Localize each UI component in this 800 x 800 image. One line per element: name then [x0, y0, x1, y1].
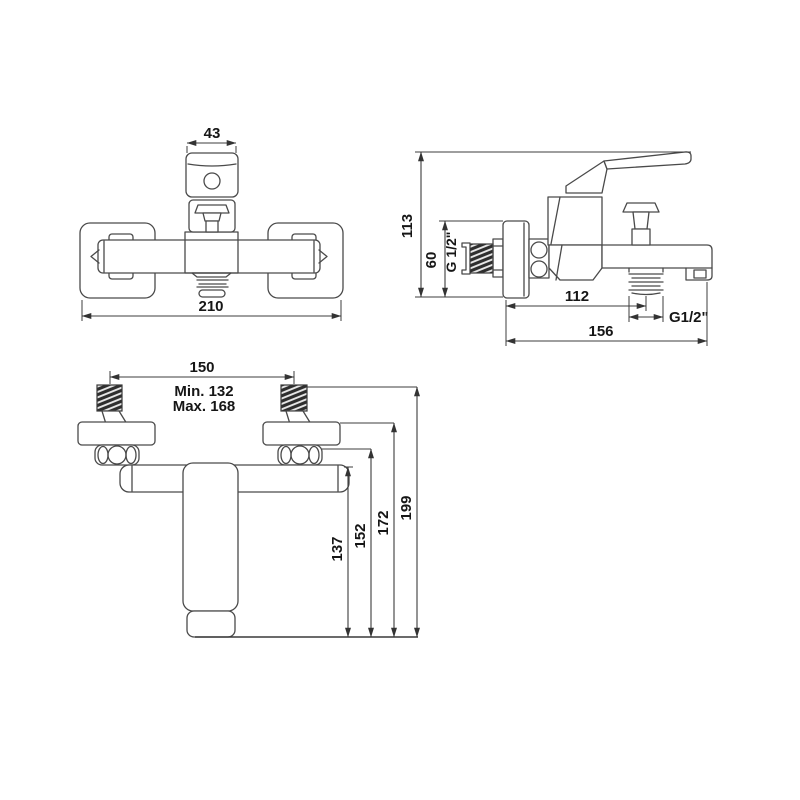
knob-base [632, 229, 650, 245]
front-dim-210-label: 210 [198, 298, 223, 315]
top-dim-150-label: 150 [189, 359, 214, 376]
front-dim-43-label: 43 [204, 125, 221, 142]
knob-cap [195, 205, 229, 213]
knob-cap [623, 203, 659, 212]
front-handle [186, 153, 238, 197]
side-shower-thread-label: G 1/2" [443, 232, 459, 273]
inlet-escutcheon [263, 422, 340, 445]
knob-stem [203, 213, 221, 221]
top-dim-172-label: 172 [375, 510, 392, 535]
knob-stem [633, 212, 649, 229]
top-dim-137-label: 137 [329, 536, 346, 561]
side-body [548, 197, 602, 280]
side-wall-plate [503, 221, 529, 298]
side-dim-112-label: 112 [565, 288, 589, 305]
side-outlet-thread-label: G1/2" [669, 309, 709, 326]
front-body-bar [98, 240, 320, 273]
inlet-escutcheon [78, 422, 155, 445]
inlet-nut [95, 445, 139, 465]
side-dim-113-label: 113 [399, 214, 416, 238]
top-spout-body [183, 463, 238, 611]
side-union-nut [529, 239, 549, 278]
outlet-thread-block [470, 244, 493, 273]
cartridge-body [548, 197, 602, 245]
knob-base [206, 221, 218, 232]
drawing-svg: 43 210 [0, 0, 800, 800]
inlet-thread-pipe [281, 385, 307, 411]
top-dim-199-label: 199 [398, 495, 415, 520]
inlet-nut [278, 445, 322, 465]
top-dim-max-label: Max. 168 [173, 398, 236, 415]
side-dim-60-label: 60 [423, 252, 440, 269]
side-dim-156-label: 156 [588, 323, 613, 340]
inlet-thread-pipe [97, 385, 122, 411]
top-spout-tip [187, 611, 235, 637]
technical-drawing-canvas: 43 210 [0, 0, 800, 800]
top-dim-152-label: 152 [352, 523, 369, 548]
